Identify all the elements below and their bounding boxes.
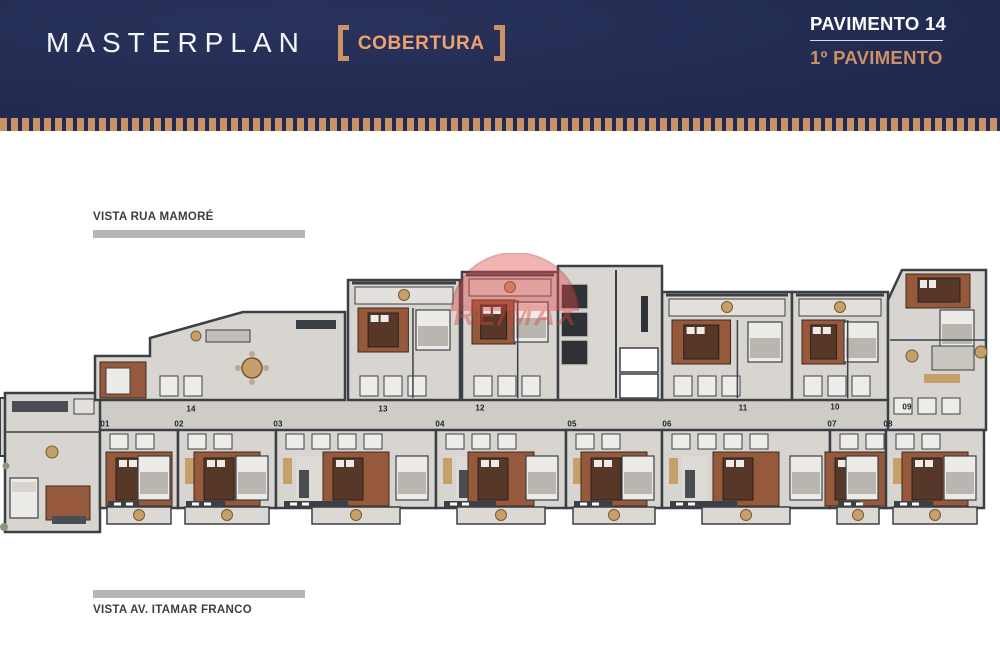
top-unit-block bbox=[662, 292, 792, 400]
header: MASTERPLAN COBERTURA PAVIMENTO 14 1º PAV… bbox=[0, 0, 1000, 118]
top-unit-block bbox=[792, 292, 888, 400]
page-title: MASTERPLAN bbox=[46, 29, 306, 57]
bottom-unit-block bbox=[178, 430, 276, 524]
pavimento-primary: PAVIMENTO 14 bbox=[810, 13, 970, 35]
vista-bottom: VISTA AV. ITAMAR FRANCO bbox=[93, 590, 305, 616]
title-row: MASTERPLAN COBERTURA bbox=[46, 20, 505, 66]
decorative-ticker-strip bbox=[0, 118, 1000, 131]
masterplan-slide: MASTERPLAN COBERTURA PAVIMENTO 14 1º PAV… bbox=[0, 0, 1000, 667]
unit-label-12: 12 bbox=[475, 404, 484, 413]
bottom-unit-block bbox=[100, 430, 178, 524]
bottom-unit-block bbox=[662, 430, 830, 524]
pavimento-secondary: 1º PAVIMENTO bbox=[810, 47, 970, 69]
vista-top-label: VISTA RUA MAMORÉ bbox=[93, 211, 305, 223]
left-bracket-icon bbox=[338, 25, 349, 61]
floor-plan: RE/MAX 1413121110090102030405060708 bbox=[0, 253, 1000, 555]
bottom-unit-block bbox=[276, 430, 436, 524]
unit-label-07: 07 bbox=[827, 420, 836, 429]
left-wing-unit bbox=[0, 393, 100, 532]
vista-bottom-bar bbox=[93, 590, 305, 598]
unit-label-13: 13 bbox=[378, 405, 387, 414]
unit-label-14: 14 bbox=[186, 405, 195, 414]
unit-label-08: 08 bbox=[883, 420, 892, 429]
unit-14-block bbox=[95, 312, 345, 400]
unit-label-06: 06 bbox=[662, 420, 671, 429]
unit-label-10: 10 bbox=[830, 403, 839, 412]
top-unit-block bbox=[348, 280, 460, 400]
unit-label-02: 02 bbox=[174, 420, 183, 429]
remax-watermark-text: RE/MAX bbox=[454, 300, 579, 332]
elevator-core bbox=[558, 266, 662, 400]
badge-label: COBERTURA bbox=[349, 34, 494, 53]
unit-label-09: 09 bbox=[902, 403, 911, 412]
right-bracket-icon bbox=[494, 25, 505, 61]
corridor bbox=[8, 401, 890, 431]
pavimento-block: PAVIMENTO 14 1º PAVIMENTO bbox=[810, 13, 970, 69]
unit-label-05: 05 bbox=[567, 420, 576, 429]
unit-label-01: 01 bbox=[100, 420, 109, 429]
vista-bottom-label: VISTA AV. ITAMAR FRANCO bbox=[93, 604, 305, 616]
cobertura-badge: COBERTURA bbox=[338, 20, 505, 66]
vista-top: VISTA RUA MAMORÉ bbox=[93, 211, 305, 238]
unit-label-04: 04 bbox=[435, 420, 444, 429]
vista-top-bar bbox=[93, 230, 305, 238]
bottom-unit-block bbox=[886, 430, 984, 524]
bottom-unit-block bbox=[566, 430, 662, 524]
floor-plan-svg: RE/MAX bbox=[0, 253, 1000, 555]
bottom-unit-block bbox=[825, 430, 891, 524]
unit-label-03: 03 bbox=[273, 420, 282, 429]
pavimento-divider bbox=[810, 40, 943, 41]
bottom-unit-block bbox=[436, 430, 566, 524]
unit-label-11: 11 bbox=[739, 404, 748, 413]
